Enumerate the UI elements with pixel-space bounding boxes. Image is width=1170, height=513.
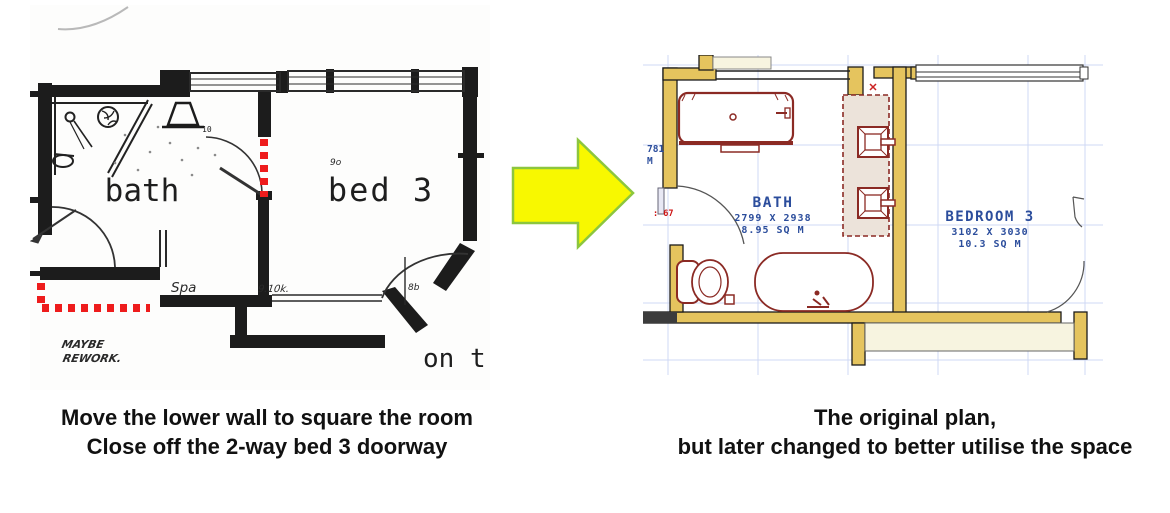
bedroom-area: 10.3 SQ M xyxy=(958,239,1021,250)
wall-dark-end xyxy=(643,312,677,323)
bedroom-name: BEDROOM 3 xyxy=(945,209,1034,225)
room-label-bath: bath xyxy=(105,173,180,209)
right-caption-line1: The original plan, xyxy=(640,403,1170,432)
wardrobe xyxy=(865,323,1074,351)
dimension-annotation: 9.10k. xyxy=(257,284,290,295)
svg-text:MAYBE: MAYBE xyxy=(60,338,105,351)
right-caption-line2: but later changed to better utilise the … xyxy=(640,432,1170,461)
vanity-unit xyxy=(843,95,895,236)
bath-dims: 2799 X 2938 xyxy=(734,213,811,224)
bath-area: 8.95 SQ M xyxy=(741,225,804,236)
right-floor-plan-cad: BATH 2799 X 2938 8.95 SQ M BEDROOM 3 310… xyxy=(643,55,1103,375)
annotation-8b: 8b xyxy=(408,283,420,293)
bedroom-dims: 3102 X 3030 xyxy=(951,227,1028,238)
corner-cropped-text: on t xyxy=(423,344,486,374)
insulation-panel xyxy=(713,57,771,69)
left-caption-line1: Move the lower wall to square the room xyxy=(30,403,504,432)
svg-text:REWORK.: REWORK. xyxy=(61,352,122,365)
left-floor-plan-sketch: 10 bath be xyxy=(30,5,490,390)
room-label-bed3: bed 3 xyxy=(328,171,434,209)
right-caption: The original plan, but later changed to … xyxy=(640,403,1170,461)
right-arrow-icon xyxy=(513,140,633,247)
transition-arrow xyxy=(505,135,645,255)
fixture-size-note: 10 xyxy=(202,125,212,134)
bathtub xyxy=(755,253,873,311)
left-caption: Move the lower wall to square the room C… xyxy=(30,403,504,461)
door-dimension-unit: M xyxy=(647,156,653,167)
shower xyxy=(679,93,793,152)
door-annotation: 9o xyxy=(330,158,342,168)
left-caption-line2: Close off the 2-way bed 3 doorway xyxy=(30,432,504,461)
toilet xyxy=(677,260,728,304)
slide-canvas: 10 bath be xyxy=(0,0,1170,513)
bedroom-window xyxy=(916,65,1088,81)
door-dimension: 781 xyxy=(647,144,664,155)
red-note: : 67 xyxy=(653,209,673,219)
floor-waste xyxy=(725,295,734,304)
bath-name: BATH xyxy=(753,195,794,211)
spa-label: Spa xyxy=(171,280,196,296)
